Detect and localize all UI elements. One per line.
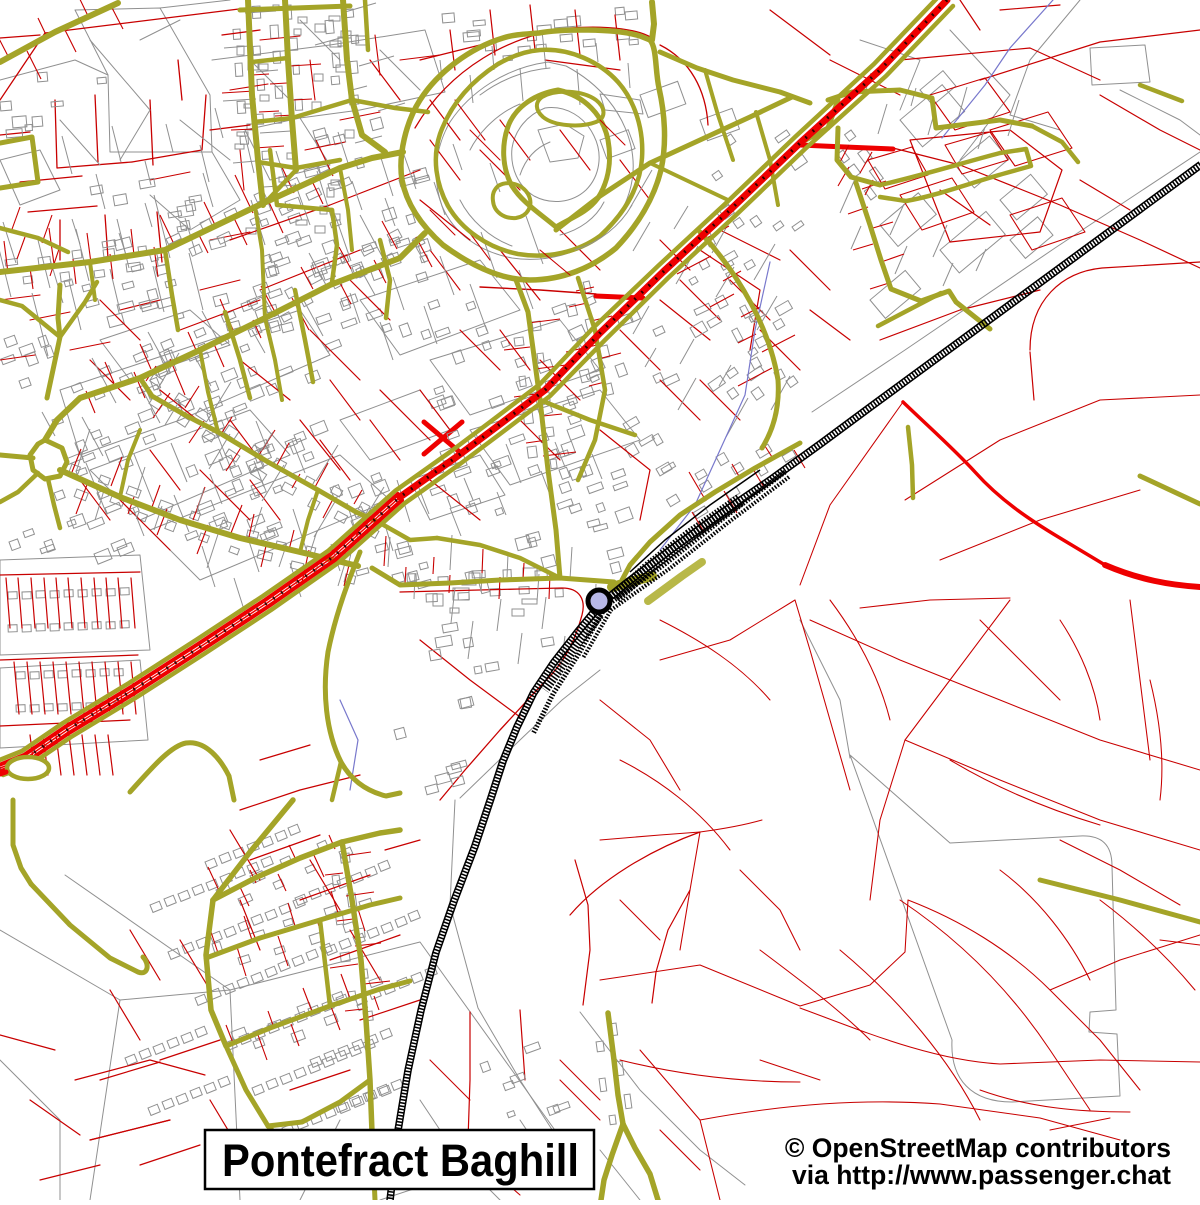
- svg-text:Pontefract Baghill: Pontefract Baghill: [222, 1135, 579, 1186]
- svg-text:© OpenStreetMap contributors: © OpenStreetMap contributors: [785, 1133, 1171, 1163]
- svg-text:via http://www.passenger.chat: via http://www.passenger.chat: [792, 1160, 1171, 1190]
